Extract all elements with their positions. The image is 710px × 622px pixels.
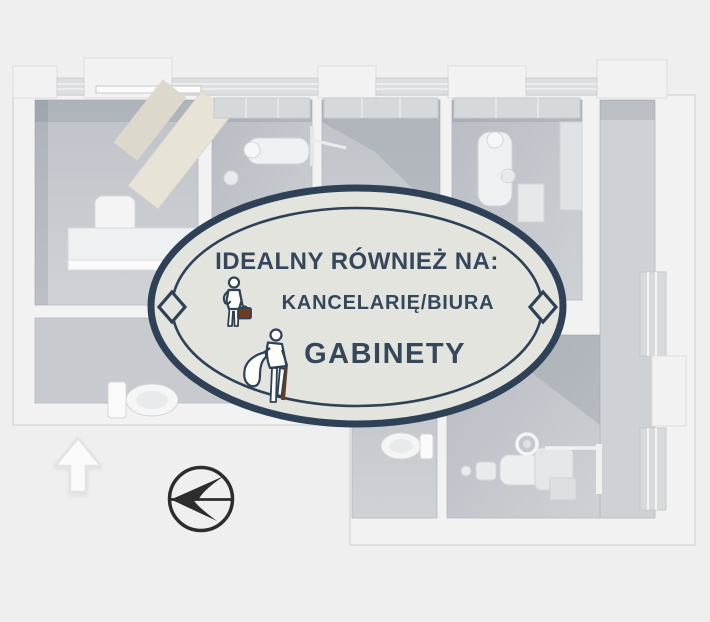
- north-compass-icon: [164, 462, 238, 536]
- badge-item-cabinets: GABINETY: [297, 338, 473, 371]
- person-with-coat-cane-icon: [235, 328, 301, 408]
- badge-heading: IDEALNY RÓWNIEŻ NA:: [147, 248, 567, 276]
- floorplan-scene: IDEALNY RÓWNIEŻ NA: KANCELARIĘ/BIURA: [0, 0, 710, 622]
- stool: [224, 171, 238, 185]
- promo-badge: IDEALNY RÓWNIEŻ NA: KANCELARIĘ/BIURA: [147, 184, 567, 429]
- businessman-briefcase-icon: [215, 276, 253, 332]
- up-arrow-icon: [52, 434, 104, 498]
- badge-item-offices: KANCELARIĘ/BIURA: [273, 292, 503, 315]
- toilet-2: [381, 433, 433, 459]
- cabinets-2: [324, 98, 438, 118]
